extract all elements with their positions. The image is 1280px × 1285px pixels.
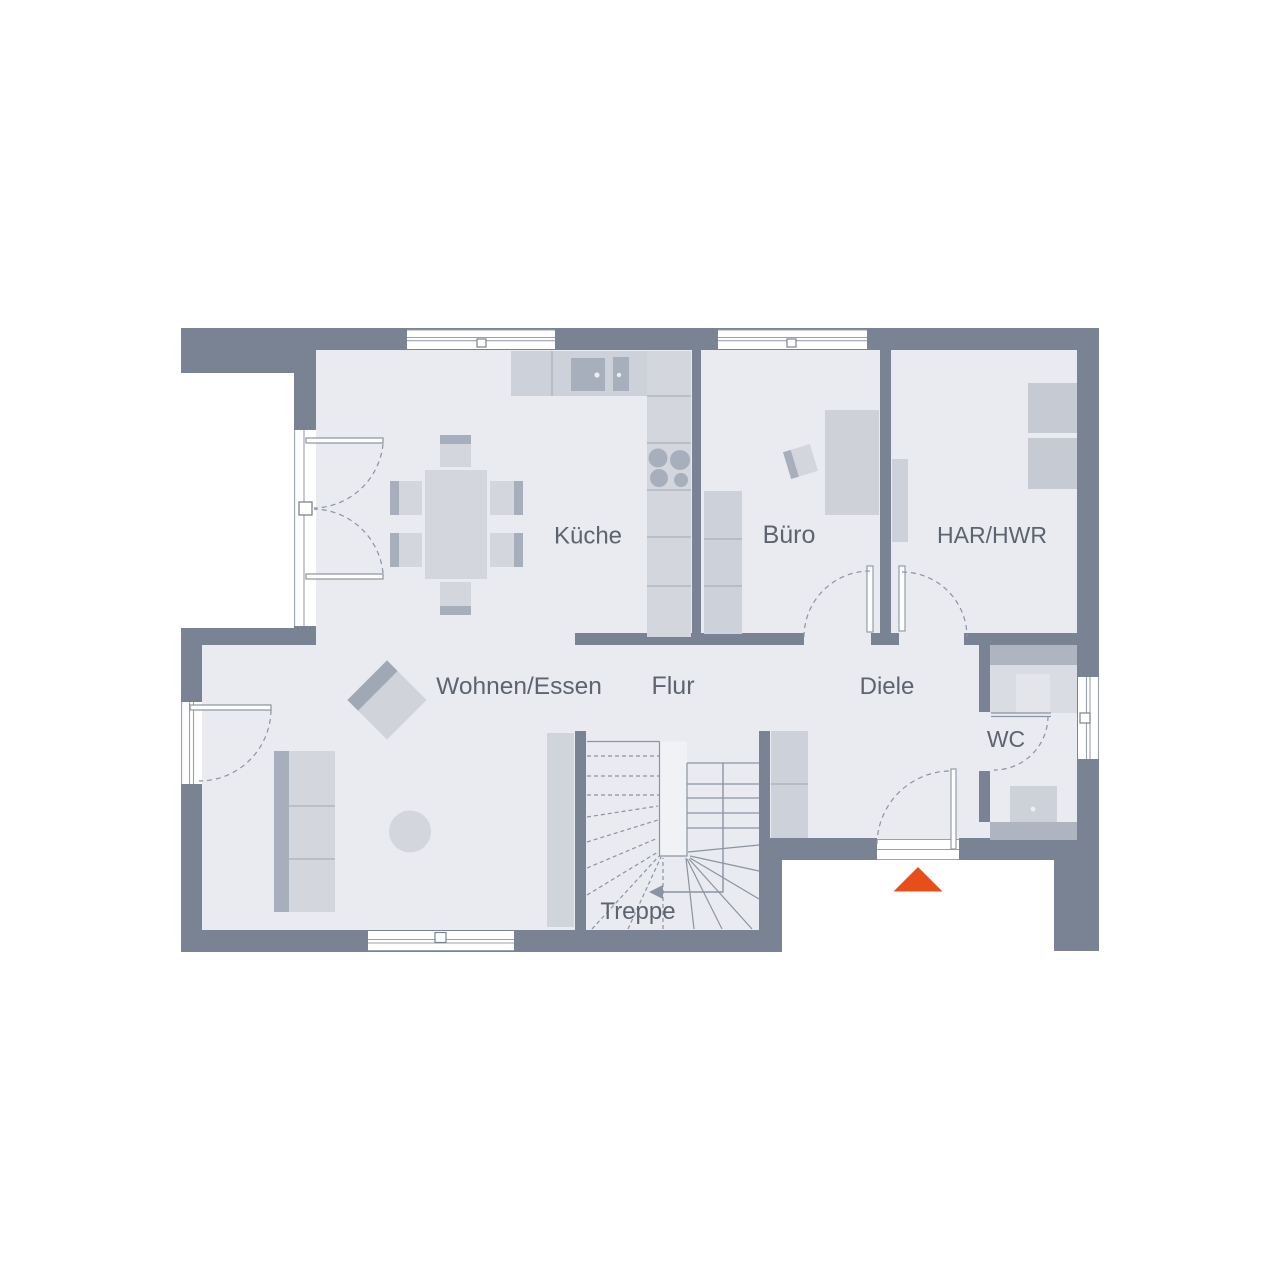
svg-text:Diele: Diele (860, 673, 915, 700)
svg-text:Küche: Küche (554, 523, 622, 550)
svg-text:Wohnen/Essen: Wohnen/Essen (436, 673, 602, 700)
svg-text:Büro: Büro (763, 521, 816, 549)
svg-text:Treppe: Treppe (600, 898, 675, 925)
svg-text:Flur: Flur (651, 672, 694, 700)
svg-text:WC: WC (987, 726, 1025, 752)
svg-text:HAR/HWR: HAR/HWR (937, 522, 1047, 548)
